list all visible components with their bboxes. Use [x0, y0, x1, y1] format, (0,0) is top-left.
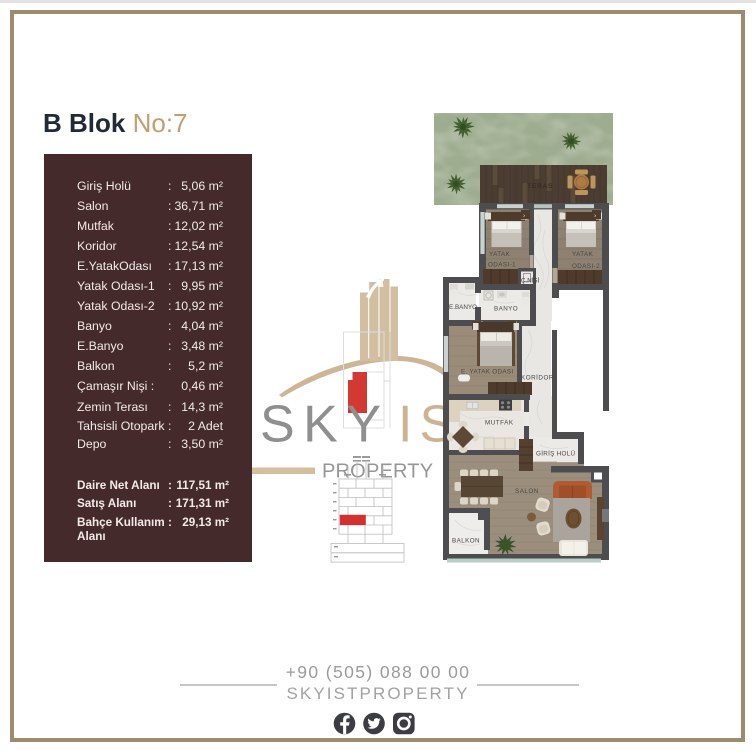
svg-text:TERAS: TERAS — [527, 183, 553, 190]
svg-text:BANYO: BANYO — [494, 306, 518, 313]
svg-text:MUTFAK: MUTFAK — [485, 420, 514, 427]
svg-text:YATAK: YATAK — [572, 251, 594, 258]
svg-text:YATAK: YATAK — [489, 251, 511, 258]
svg-text:GİRİŞ HOLÜ: GİRİŞ HOLÜ — [536, 449, 576, 458]
svg-text:SKY: SKY — [260, 396, 390, 454]
svg-text:›: › — [594, 213, 596, 220]
svg-text:Ç.NİŞİ: Ç.NİŞİ — [521, 278, 540, 285]
svg-text:›: › — [523, 213, 525, 220]
svg-text:KORİDOR: KORİDOR — [521, 373, 554, 382]
svg-text:BALKON: BALKON — [452, 538, 480, 545]
svg-text:E. YATAK ODASI: E. YATAK ODASI — [461, 369, 513, 376]
svg-text:SALON: SALON — [515, 488, 539, 495]
svg-text:ODASI-2: ODASI-2 — [572, 263, 600, 270]
svg-text:ODASI-1: ODASI-1 — [488, 262, 516, 269]
svg-text:E.BANYO: E.BANYO — [449, 304, 477, 311]
